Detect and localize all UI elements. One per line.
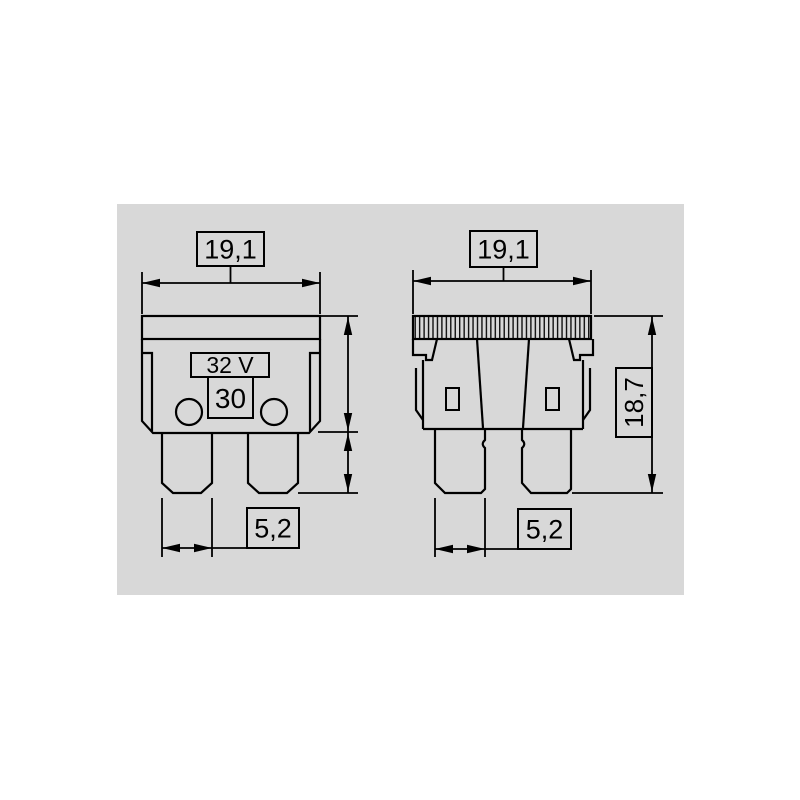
arrow-down-icon	[344, 413, 352, 431]
drawing-panel: 19,1 32 V 30	[117, 204, 684, 595]
front-blade-dimension: 5,2	[162, 498, 299, 557]
front-fuse-body: 32 V 30	[142, 316, 320, 493]
element-slant-left	[477, 339, 483, 428]
rear-width-dimension: 19,1	[413, 231, 591, 314]
rivet-circle-left	[176, 399, 202, 425]
arrow-right-icon	[302, 279, 320, 287]
dimension-lines	[572, 316, 663, 493]
arrow-up-icon	[344, 433, 352, 451]
rear-height-label: 18,7	[619, 377, 649, 428]
rear-blade-dimension: 5,2	[435, 498, 571, 557]
arrow-left-icon	[435, 545, 453, 553]
rear-height-dimension: 18,7	[572, 316, 663, 493]
blade-terminal-left	[162, 433, 212, 493]
element-slant-right	[523, 339, 529, 428]
housing-inner-wall-left	[142, 353, 152, 431]
voltage-rating-label: 32 V	[206, 352, 254, 378]
rear-view: 19,1	[413, 231, 663, 557]
blade-terminal-right	[248, 433, 298, 493]
arrow-up-icon	[648, 317, 656, 335]
dimension-lines	[142, 266, 320, 314]
blade-terminal-left	[435, 429, 485, 493]
arrow-right-icon	[194, 544, 212, 552]
ribbed-top-cap	[413, 316, 591, 339]
front-width-dimension: 19,1	[142, 232, 320, 314]
arrow-left-icon	[162, 544, 180, 552]
rivet-circle-right	[261, 399, 287, 425]
dimension-lines	[298, 316, 358, 493]
arrow-left-icon	[142, 279, 160, 287]
arrow-down-icon	[344, 474, 352, 492]
current-rating-label: 30	[215, 383, 246, 414]
front-height-dimension	[298, 316, 358, 493]
element-window-right	[546, 388, 559, 410]
blade-terminal-right	[522, 429, 571, 493]
arrow-right-icon	[573, 277, 591, 285]
housing-inner-wall-right	[310, 353, 320, 431]
fuse-technical-drawing: 19,1 32 V 30	[117, 204, 684, 595]
front-width-label: 19,1	[204, 234, 257, 264]
arrow-down-icon	[648, 474, 656, 492]
dimension-lines	[413, 267, 591, 314]
front-blade-width-label: 5,2	[254, 513, 292, 543]
shoulder-notch-left	[413, 339, 437, 360]
rear-blade-width-label: 5,2	[526, 514, 564, 544]
shoulder-notch-right	[569, 339, 593, 360]
front-view: 19,1 32 V 30	[142, 232, 358, 557]
arrow-left-icon	[413, 277, 431, 285]
rear-fuse-body	[413, 316, 593, 493]
arrow-right-icon	[467, 545, 485, 553]
rear-width-label: 19,1	[477, 234, 530, 264]
arrow-up-icon	[344, 317, 352, 335]
fuse-top-cap	[142, 316, 320, 339]
element-window-left	[446, 388, 459, 410]
